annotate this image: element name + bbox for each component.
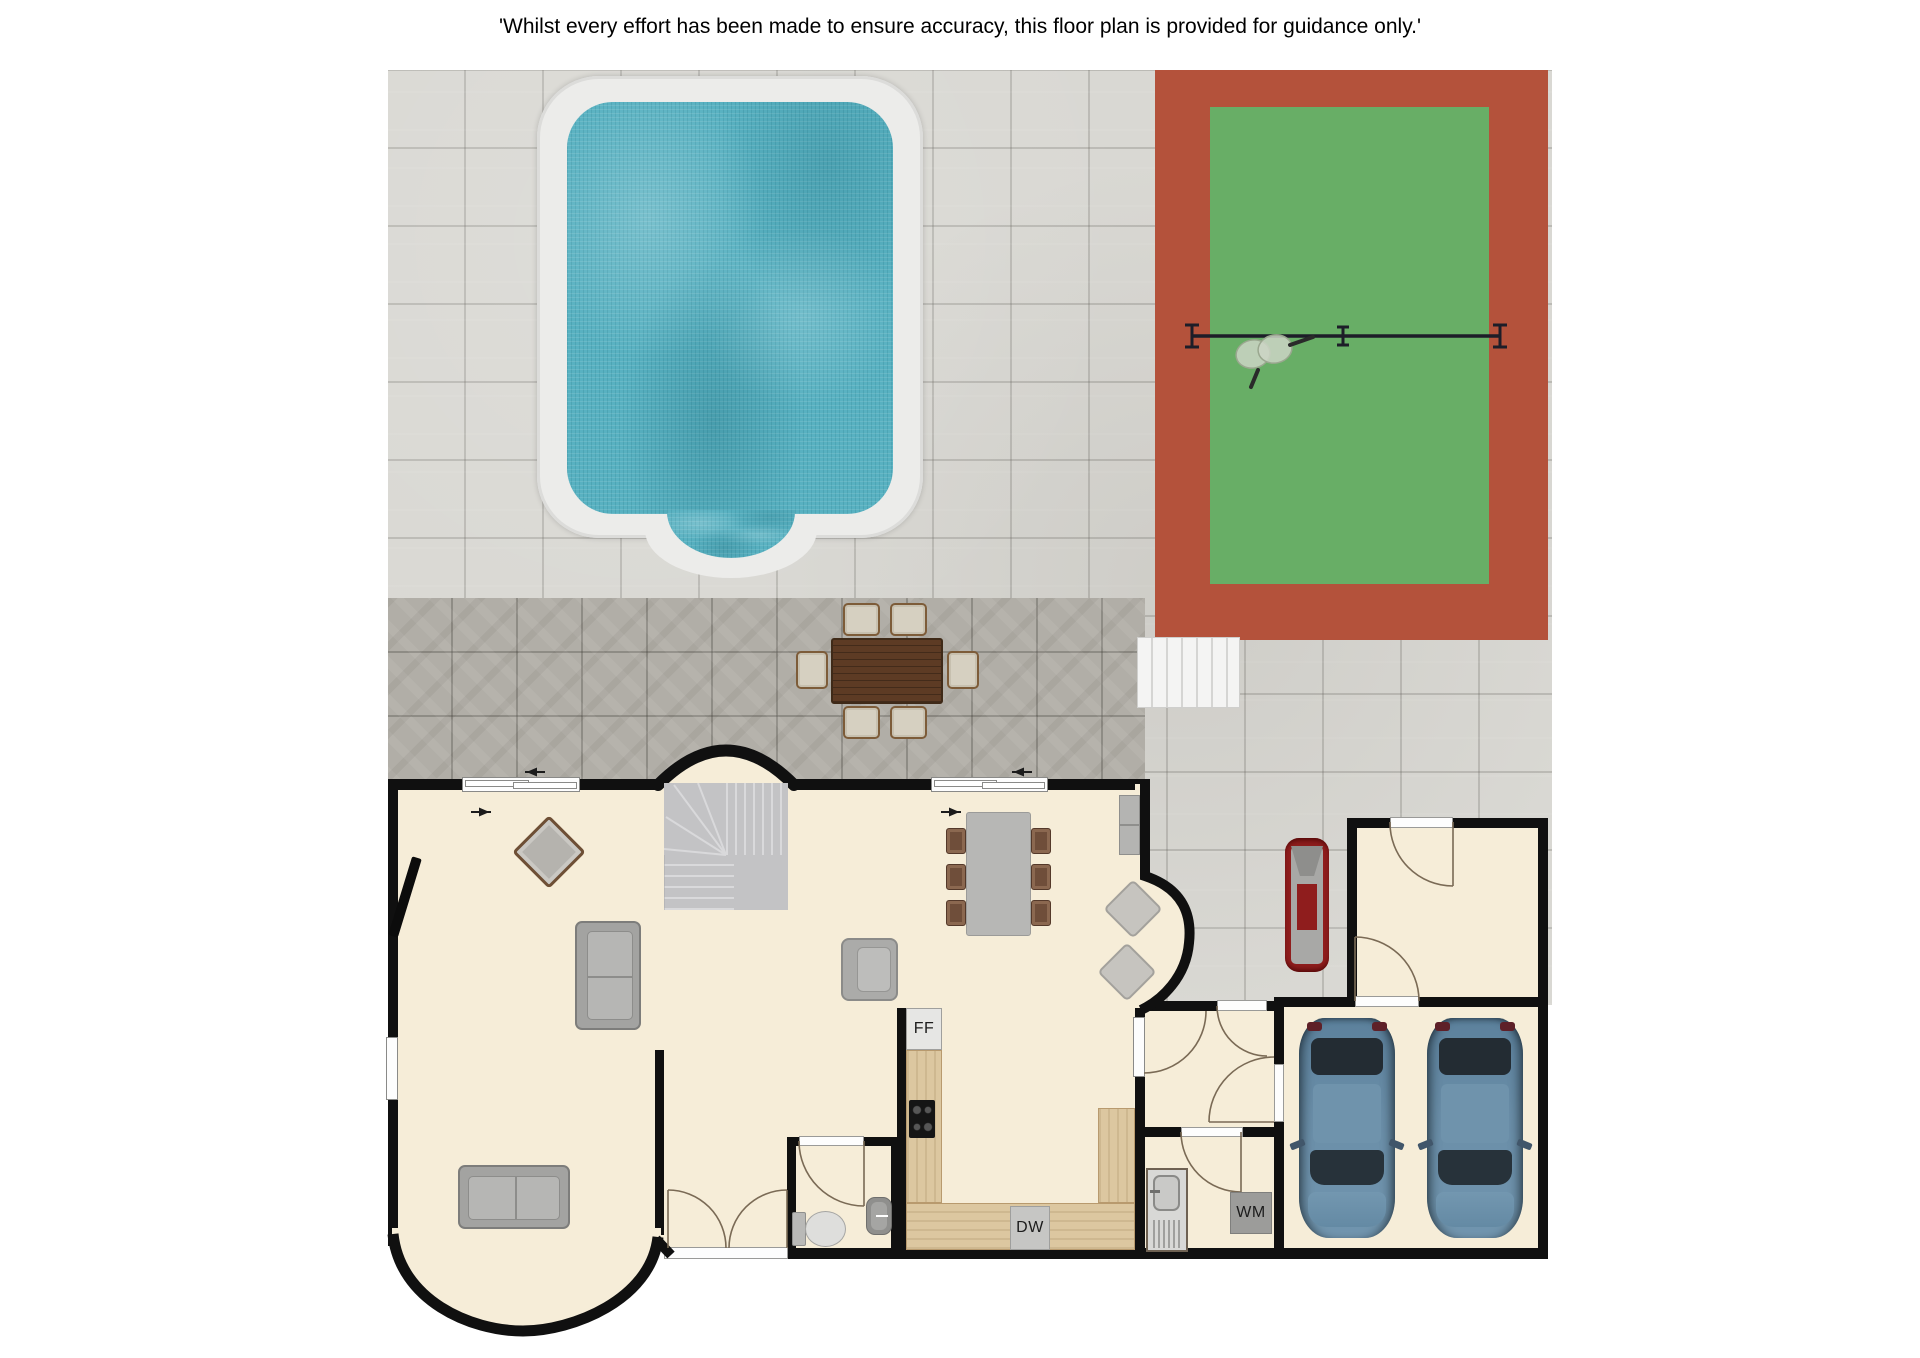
toilet-cistern xyxy=(792,1212,806,1246)
dining-chair xyxy=(946,900,966,926)
bay-fill xyxy=(392,1228,661,1328)
car-rear-window xyxy=(1439,1038,1510,1075)
plan-linework xyxy=(0,0,1920,1358)
car xyxy=(1299,1018,1395,1238)
basin-tap xyxy=(876,1215,888,1217)
basin xyxy=(866,1197,892,1235)
car xyxy=(1427,1018,1523,1238)
fridge-freezer-label: FF xyxy=(914,1020,935,1038)
armchair xyxy=(841,938,898,1001)
car-tail-light xyxy=(1372,1022,1387,1031)
sofa xyxy=(458,1165,570,1229)
hob xyxy=(909,1100,935,1138)
sink-bowl xyxy=(1153,1175,1180,1211)
kitchen-counter xyxy=(1098,1108,1135,1203)
washing-machine: WM xyxy=(1230,1192,1272,1234)
dining-table xyxy=(966,812,1031,936)
tennis-rackets-icon xyxy=(1233,332,1313,387)
car-roof xyxy=(1441,1084,1508,1143)
dining-chair xyxy=(1031,864,1051,890)
car-hood xyxy=(1436,1192,1515,1227)
toilet xyxy=(805,1211,846,1247)
car-tail-light xyxy=(1500,1022,1515,1031)
dishwasher-label: DW xyxy=(1016,1219,1044,1237)
washing-machine-label: WM xyxy=(1236,1204,1265,1222)
stair-winders xyxy=(664,783,788,910)
dining-chair xyxy=(946,864,966,890)
floor-plan: 'Whilst every effort has been made to en… xyxy=(0,0,1920,1358)
car-windshield xyxy=(1438,1150,1513,1185)
car-tail-light xyxy=(1435,1022,1450,1031)
tennis-net xyxy=(1185,325,1507,347)
dining-chair xyxy=(946,828,966,854)
car-hood xyxy=(1308,1192,1387,1227)
sofa xyxy=(575,921,641,1030)
utility-sink-unit xyxy=(1146,1168,1188,1252)
cabinet xyxy=(1119,795,1140,855)
car-windshield xyxy=(1310,1150,1385,1185)
car-rear-window xyxy=(1311,1038,1382,1075)
armchair-cushion xyxy=(857,947,891,992)
dishwasher: DW xyxy=(1010,1206,1050,1250)
sofa-seam xyxy=(515,1176,517,1220)
dining-chair xyxy=(1031,828,1051,854)
sofa-seam xyxy=(587,976,633,978)
car-roof xyxy=(1313,1084,1380,1143)
dining-chair xyxy=(1031,900,1051,926)
car-tail-light xyxy=(1307,1022,1322,1031)
sink-tap xyxy=(1150,1190,1160,1193)
sink-drainer xyxy=(1153,1220,1181,1248)
sofa-cushions xyxy=(468,1176,560,1220)
fridge-freezer: FF xyxy=(906,1008,942,1050)
cabinet-line xyxy=(1120,824,1139,826)
staircase xyxy=(664,783,788,910)
